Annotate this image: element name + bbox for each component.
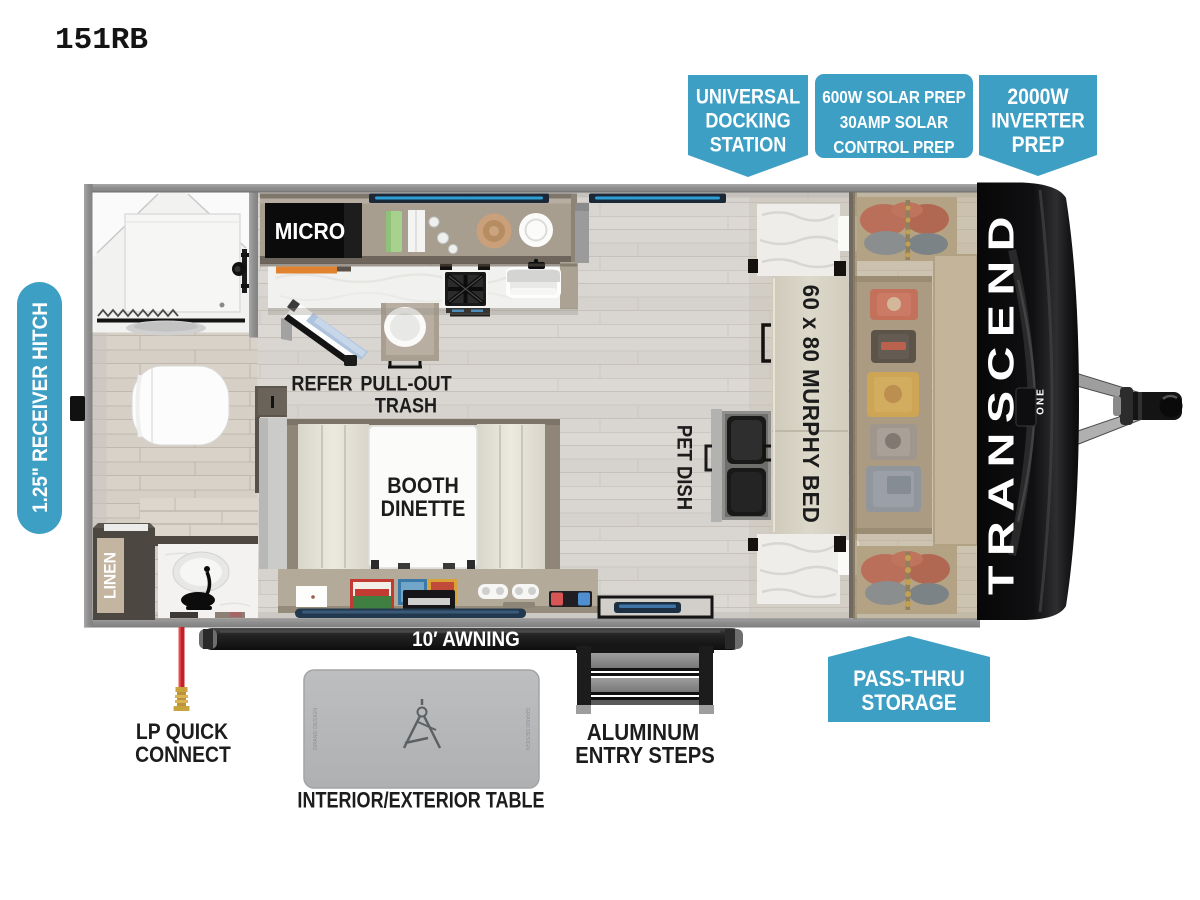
svg-text:CONNECT: CONNECT [135,743,231,767]
svg-text:BOOTH: BOOTH [387,474,458,498]
svg-text:151RB: 151RB [55,23,148,58]
svg-text:ONE: ONE [1036,387,1047,415]
svg-text:UNIVERSAL: UNIVERSAL [696,85,800,109]
svg-text:TRASH: TRASH [375,394,437,418]
svg-text:30AMP SOLAR: 30AMP SOLAR [840,112,948,132]
svg-text:PASS-THRU: PASS-THRU [853,667,964,691]
svg-text:INTERIOR/EXTERIOR TABLE: INTERIOR/EXTERIOR TABLE [297,789,544,813]
svg-text:2000W: 2000W [1007,85,1069,109]
svg-text:GRAND DESIGN: GRAND DESIGN [313,708,319,751]
svg-text:LINEN: LINEN [101,552,120,599]
svg-text:1.25" RECEIVER HITCH: 1.25" RECEIVER HITCH [29,302,52,513]
svg-text:PULL-OUT: PULL-OUT [360,372,451,396]
svg-text:MICRO: MICRO [275,218,345,244]
svg-text:PET DISH: PET DISH [672,425,695,510]
svg-text:STATION: STATION [710,133,787,157]
svg-text:PREP: PREP [1012,133,1065,157]
svg-text:GRAND DESIGN: GRAND DESIGN [524,708,530,751]
svg-text:LP QUICK: LP QUICK [136,720,228,744]
svg-text:DOCKING: DOCKING [705,109,790,133]
svg-text:DINETTE: DINETTE [381,497,466,521]
svg-text:REFER: REFER [291,372,352,396]
svg-text:TRANSCEND: TRANSCEND [981,207,1022,595]
svg-text:10′ AWNING: 10′ AWNING [412,628,520,651]
svg-text:STORAGE: STORAGE [861,691,957,715]
svg-text:ENTRY STEPS: ENTRY STEPS [575,742,714,769]
svg-text:60 x 80 MURPHY BED: 60 x 80 MURPHY BED [798,285,825,524]
svg-text:INVERTER: INVERTER [991,109,1085,133]
svg-text:CONTROL PREP: CONTROL PREP [833,137,954,157]
svg-text:600W SOLAR PREP: 600W SOLAR PREP [822,87,966,107]
